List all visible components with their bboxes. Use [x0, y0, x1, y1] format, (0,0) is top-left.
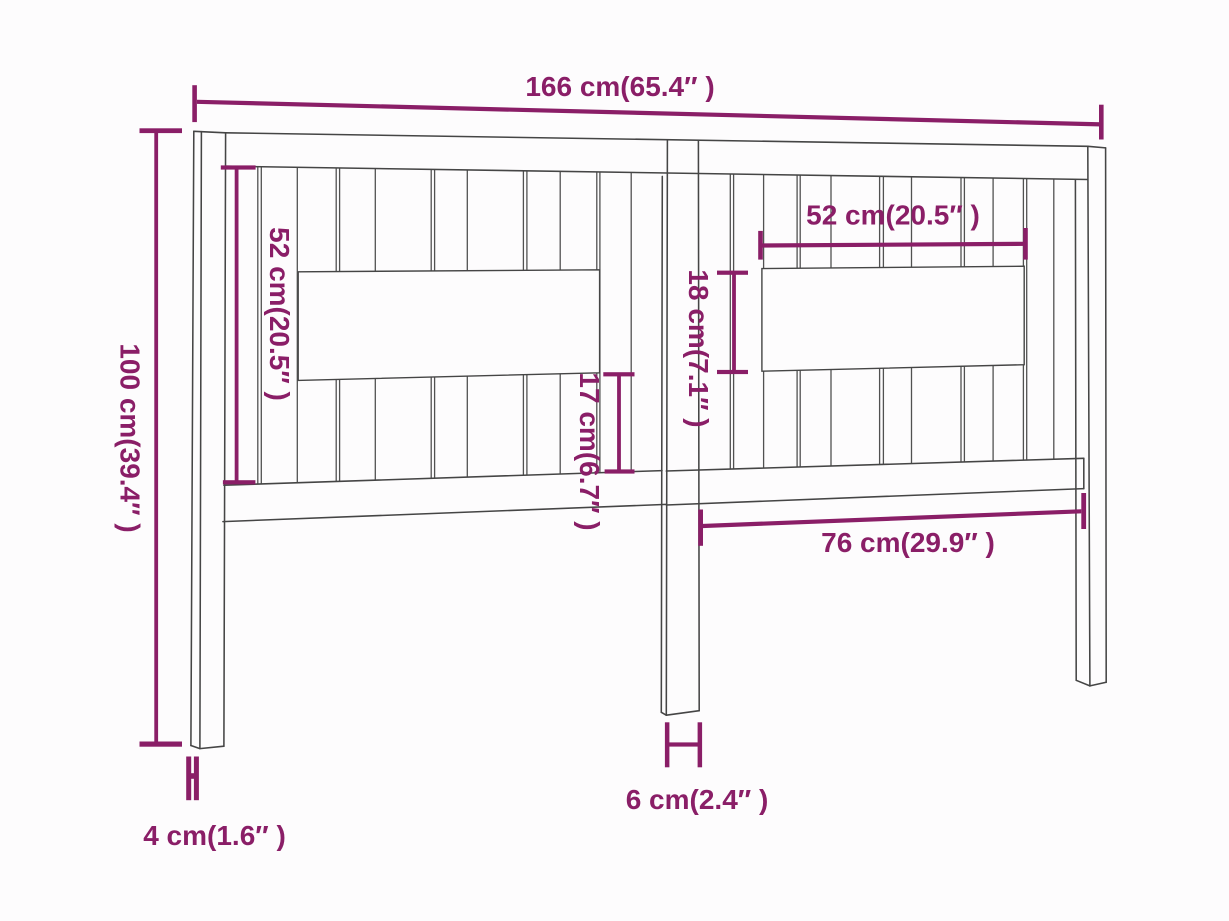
svg-text:52 cm(20.5″ ): 52 cm(20.5″ ) — [806, 200, 980, 231]
svg-text:18 cm(7.1″ ): 18 cm(7.1″ ) — [683, 269, 714, 427]
svg-text:17 cm(6.7″ ): 17 cm(6.7″ ) — [574, 372, 605, 530]
svg-text:52 cm(20.5″ ): 52 cm(20.5″ ) — [264, 227, 295, 401]
svg-text:166 cm(65.4″ ): 166 cm(65.4″ ) — [525, 71, 714, 102]
svg-text:4 cm(1.6″ ): 4 cm(1.6″ ) — [143, 820, 286, 851]
svg-text:6 cm(2.4″ ): 6 cm(2.4″ ) — [626, 784, 769, 815]
svg-text:76 cm(29.9″ ): 76 cm(29.9″ ) — [821, 527, 995, 558]
svg-text:100 cm(39.4″ ): 100 cm(39.4″ ) — [115, 343, 146, 532]
